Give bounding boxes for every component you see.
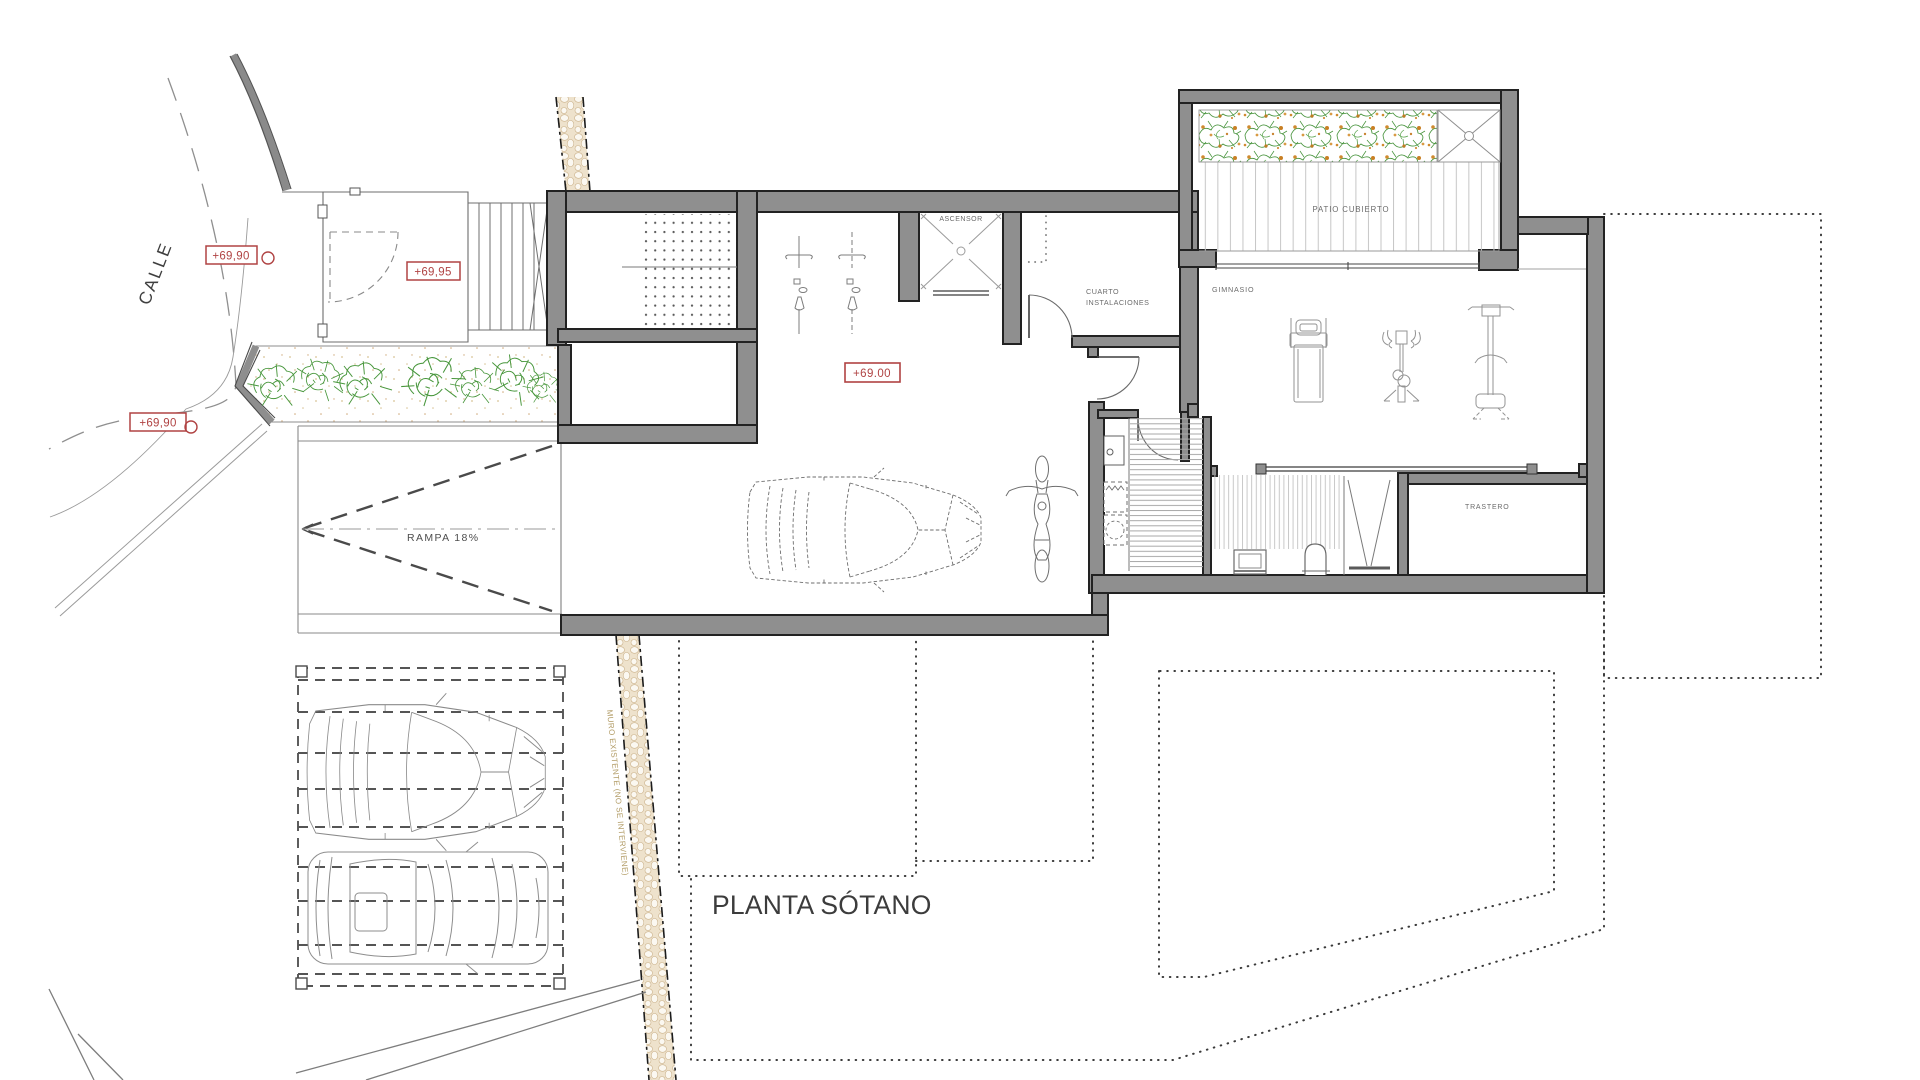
svg-text:+69,90: +69,90 bbox=[139, 418, 176, 430]
svg-text:GIMNASIO: GIMNASIO bbox=[1212, 285, 1254, 294]
svg-text:TRASTERO: TRASTERO bbox=[1465, 504, 1510, 511]
svg-text:INSTALACIONES: INSTALACIONES bbox=[1086, 298, 1149, 307]
svg-text:PATIO CUBIERTO: PATIO CUBIERTO bbox=[1312, 205, 1389, 214]
svg-text:+69,90: +69,90 bbox=[212, 251, 249, 263]
svg-text:CUARTO: CUARTO bbox=[1086, 287, 1119, 296]
svg-text:PLANTA SÓTANO: PLANTA SÓTANO bbox=[712, 890, 932, 920]
svg-text:+69.00: +69.00 bbox=[853, 368, 891, 380]
svg-text:RAMPA 18%: RAMPA 18% bbox=[407, 532, 480, 544]
svg-text:+69,95: +69,95 bbox=[414, 267, 451, 279]
svg-text:ASCENSOR: ASCENSOR bbox=[939, 216, 982, 223]
